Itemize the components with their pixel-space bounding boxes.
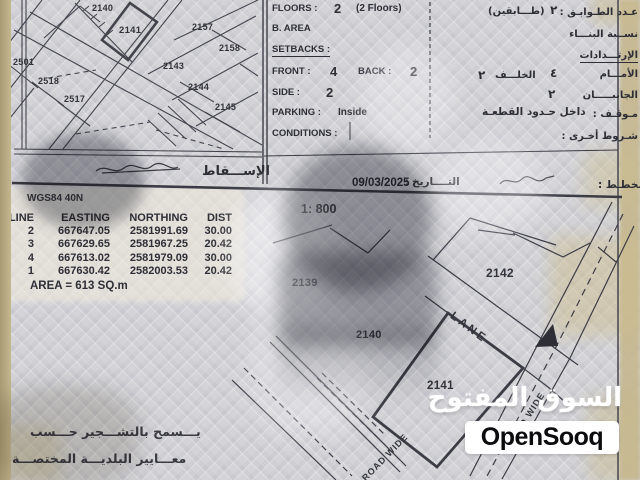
table-cell: 30.00 <box>190 225 232 238</box>
map-plot-2141-subject: 2141 <box>119 25 141 36</box>
floors-ar-label: عـدد الطـوابـق : <box>560 7 638 18</box>
table-cell: 2581991.69 <box>112 225 188 238</box>
datum-label: WGS84 40N <box>27 193 83 204</box>
parking-value: Inside <box>338 107 367 118</box>
table-cell: 4 <box>2 252 34 265</box>
side-ar-value: ٢ <box>548 87 555 101</box>
map-plot-2140: 2140 <box>92 3 113 13</box>
floors-note: (2 Floors) <box>356 3 402 14</box>
front-value: 4 <box>330 64 337 79</box>
back-ar-value: ٢ <box>478 68 485 82</box>
table-cell: 2 <box>2 225 34 238</box>
side-value: 2 <box>326 85 333 100</box>
table-cell: 2581967.25 <box>112 238 188 251</box>
planner-ar-label: المخطـط : <box>598 179 640 191</box>
table-cell: 30.00 <box>190 252 232 265</box>
map-plot-2158: 2158 <box>219 43 240 53</box>
map-plot-2143: 2143 <box>163 61 184 71</box>
side-ar-label: الجانبـــــان <box>583 90 638 101</box>
plan-plot-2139: 2139 <box>292 277 318 289</box>
parking-ar-value: داخل حـدود القطعـة <box>482 106 586 118</box>
table-cell: 667613.02 <box>36 252 110 265</box>
parking-label: PARKING : <box>272 107 321 118</box>
front-ar-value: ٤ <box>550 66 557 80</box>
col-header-easting: EASTING <box>36 212 110 225</box>
back-ar-label: الخلـــف <box>495 70 536 81</box>
setbacks-ar-label: الإرتـــدادات <box>580 50 638 63</box>
spec-panel: FLOORS : 2 (2 Floors) (طـــابقين) ٢ عـدد… <box>270 0 640 152</box>
plan-plot-2140: 2140 <box>356 329 382 341</box>
note-line-2: معـــايير البلديـــة المختصـــة <box>12 451 186 466</box>
side-label: SIDE : <box>272 87 300 98</box>
map-plot-2501: 2501 <box>13 57 34 67</box>
table-cell: 667629.65 <box>36 238 110 251</box>
area-note: AREA = 613 SQ.m <box>30 280 128 292</box>
setbacks-label: SETBACKS : <box>272 44 330 57</box>
table-cell: 667630.42 <box>36 265 110 278</box>
barea-label: B. AREA <box>272 23 311 34</box>
table-cell: 2582003.53 <box>112 265 188 278</box>
back-value: 2 <box>410 64 417 79</box>
date-separator: : <box>405 176 409 188</box>
signature-scribbles <box>96 163 554 184</box>
floors-label: FLOORS : <box>272 3 317 14</box>
photographed-plot-document: FLOORS : 2 (2 Floors) (طـــابقين) ٢ عـدد… <box>0 0 640 480</box>
plan-plot-2142: 2142 <box>486 266 514 280</box>
front-label: FRONT : <box>272 66 311 77</box>
table-cell: 2581979.09 <box>112 252 188 265</box>
date-value: 09/03/2025 <box>352 177 410 189</box>
conditions-ar-label: شـروط أخـرى : <box>562 131 638 142</box>
note-line-1: يـــسمح بالتشـــجير حـــسب <box>30 424 201 439</box>
parking-ar-label: مـوقـف : <box>593 109 638 120</box>
col-header-northing: NORTHING <box>112 212 188 225</box>
table-cell: 1 <box>2 265 34 278</box>
front-ar-label: الأمـــام <box>600 69 638 80</box>
floors-ar-value: ٢ <box>550 3 557 17</box>
conditions-label: CONDITIONS : <box>272 128 337 139</box>
map-plot-2518: 2518 <box>38 76 59 86</box>
table-cell: 20.42 <box>190 238 232 251</box>
date-ar-label: التــــاريخ <box>412 176 460 188</box>
floors-ar-note: (طـــابقين) <box>488 6 545 17</box>
map-plot-2157: 2157 <box>192 22 213 32</box>
back-label: BACK : <box>358 66 391 77</box>
coordinates-table: LINE EASTING NORTHING DIST 2 667647.05 2… <box>2 212 232 278</box>
table-cell: 667647.05 <box>36 225 110 238</box>
col-header-line: LINE <box>2 212 34 225</box>
col-header-dist: DIST <box>190 212 232 225</box>
projection-ar-label: الإســـقاط <box>202 164 270 179</box>
table-cell: 3 <box>2 238 34 251</box>
map-plot-2145: 2145 <box>215 102 236 112</box>
opensooq-logo-watermark: OpenSooq <box>465 421 619 454</box>
barea-ar-label: نســبة البنـــاء <box>569 29 638 40</box>
scale-label: 1: 800 <box>301 202 336 216</box>
map-plot-2144: 2144 <box>188 82 209 92</box>
map-plot-2517: 2517 <box>64 94 85 104</box>
floors-value: 2 <box>334 1 341 16</box>
opensooq-arabic-watermark: السوق المفتوح <box>462 383 622 413</box>
table-cell: 20.42 <box>190 265 232 278</box>
